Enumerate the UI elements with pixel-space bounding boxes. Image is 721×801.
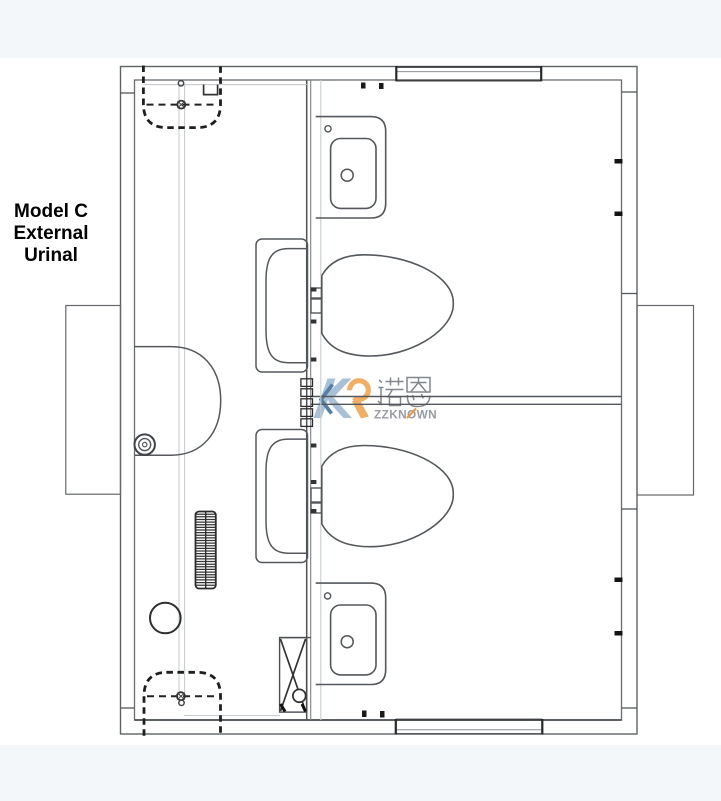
svg-text:ZZKNOWN: ZZKNOWN (374, 408, 437, 422)
